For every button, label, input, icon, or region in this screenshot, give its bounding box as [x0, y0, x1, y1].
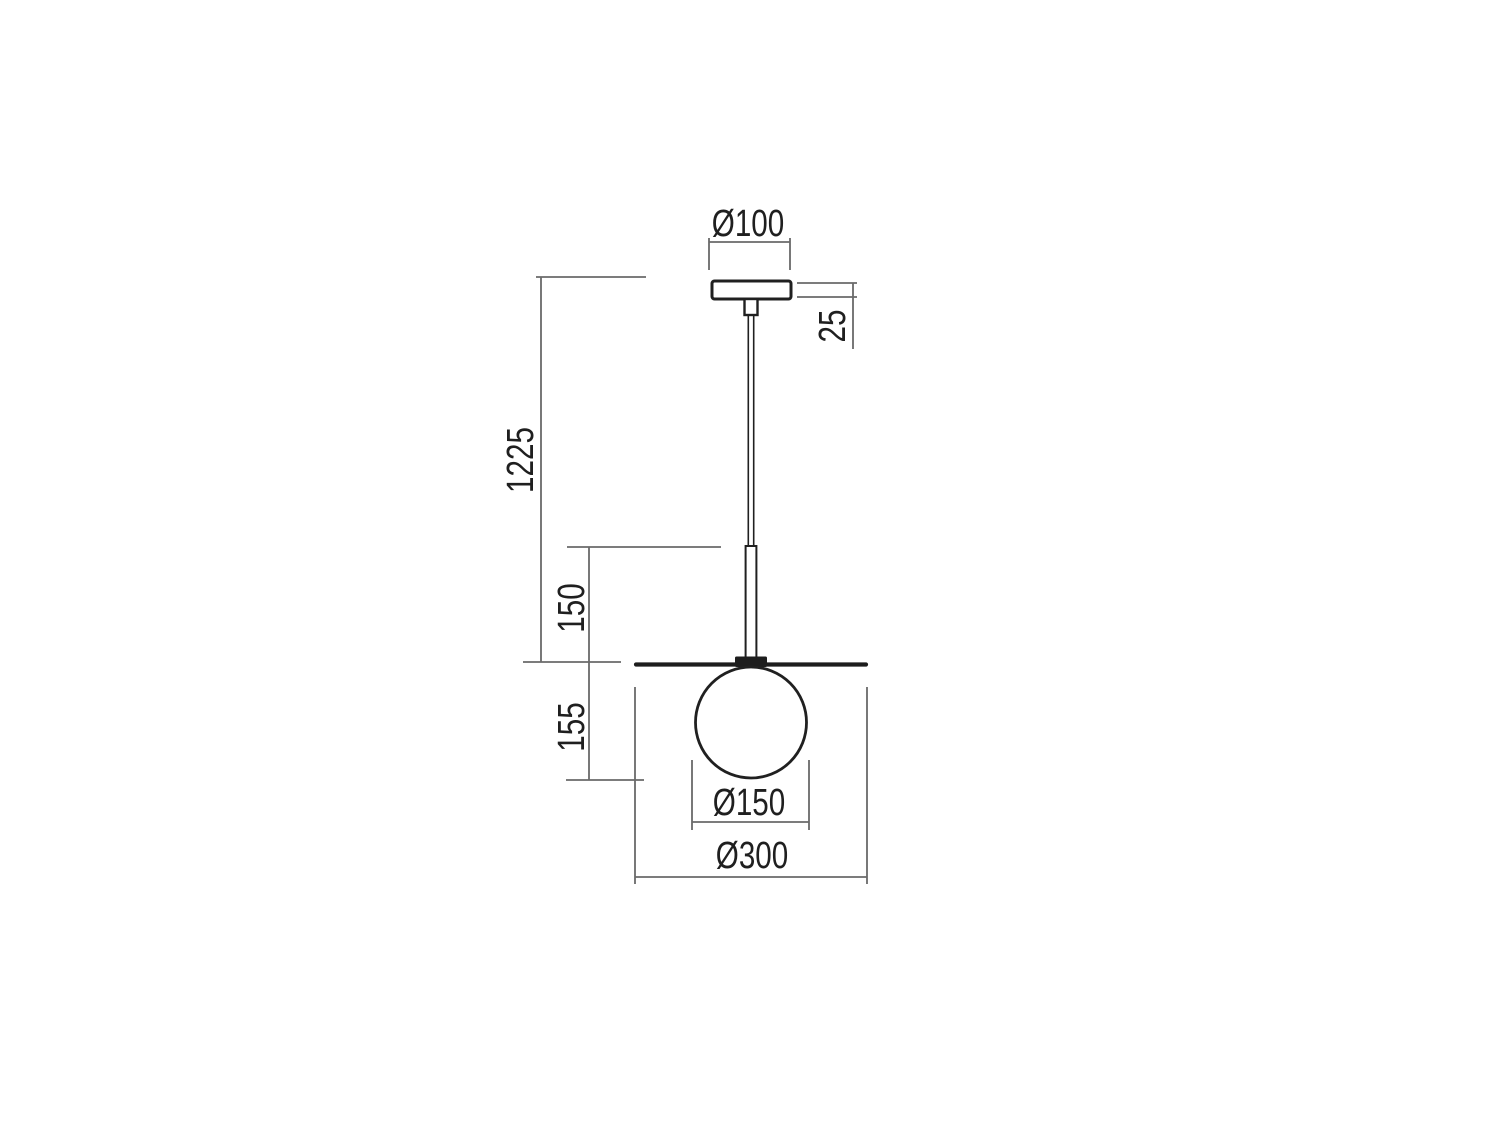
dim-label-disc-diameter: Ø300	[716, 835, 788, 877]
canopy-stem	[745, 299, 758, 315]
dim-canopy-diameter: Ø100	[709, 203, 790, 270]
cable-fitting	[735, 657, 767, 668]
pendant-lamp-dimension-drawing: Ø100 25 1225 150 155	[0, 0, 1500, 1125]
dim-globe-drop: 155	[551, 662, 644, 780]
dim-label-canopy-height: 25	[812, 310, 854, 343]
ceiling-canopy	[712, 281, 791, 299]
suspension-rod	[746, 546, 757, 662]
dim-label-rod-length: 150	[551, 583, 593, 632]
dim-canopy-height: 25	[797, 283, 857, 349]
suspension-cable	[748, 315, 753, 547]
dim-label-total-drop: 1225	[500, 427, 542, 493]
dim-label-globe-diameter: Ø150	[713, 782, 785, 824]
glass-globe	[696, 667, 807, 778]
drawing-canvas: Ø100 25 1225 150 155	[0, 0, 1500, 1125]
dim-label-canopy-diameter: Ø100	[712, 203, 784, 245]
pendant-lamp	[636, 281, 866, 778]
dim-rod-length: 150	[551, 547, 721, 662]
dim-label-globe-drop: 155	[551, 702, 593, 751]
